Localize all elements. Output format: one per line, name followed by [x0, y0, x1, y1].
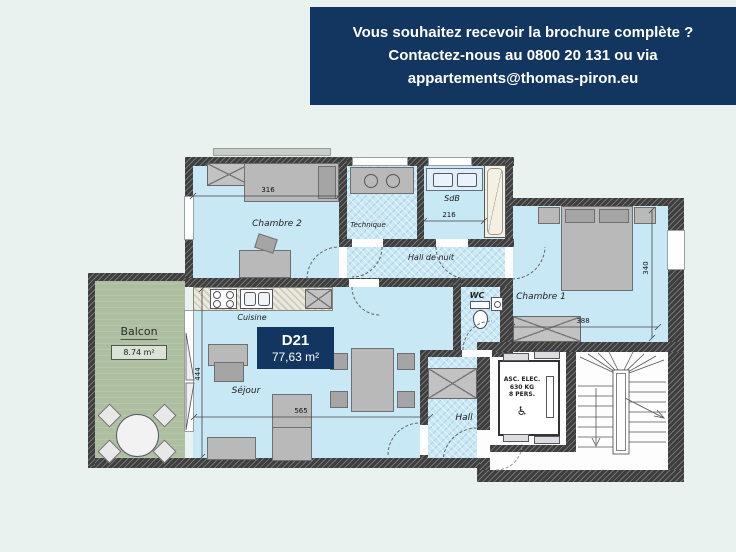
elevator-door-mechanism — [503, 353, 529, 361]
nightstand — [538, 207, 560, 224]
nightstand — [634, 207, 656, 224]
dimension-sejour-width: 565 — [294, 407, 307, 415]
room-label-cuisine: Cuisine — [237, 313, 266, 322]
elevator-label: ASC. ELEC. 630 KG 8 PERS. — [499, 376, 545, 399]
banner-line3: appartements@thomas-piron.eu — [408, 69, 639, 89]
elevator-rail — [546, 376, 554, 418]
burner — [226, 300, 234, 308]
dimension-chambre1-depth: 340 — [642, 261, 650, 274]
room-label-sdb: SdB — [444, 194, 460, 203]
burner — [213, 291, 221, 299]
elevator-label-line1: ASC. ELEC. — [499, 376, 545, 384]
contact-banner: Vous souhaitez recevoir la brochure comp… — [310, 7, 736, 105]
window — [667, 230, 685, 270]
elevator-label-line2: 630 KG — [499, 384, 545, 392]
banner-line1: Vous souhaitez recevoir la brochure comp… — [353, 23, 694, 43]
door-opening — [339, 247, 347, 278]
hand-basin — [491, 297, 503, 311]
dining-table — [351, 348, 394, 412]
unit-box: D21 77,63 m² — [257, 327, 334, 369]
door-opening — [349, 279, 379, 287]
dimension-sejour-depth: 444 — [194, 367, 202, 380]
room-label-hall: Hall — [455, 413, 472, 423]
door-opening — [436, 239, 468, 247]
elevator-label-line3: 8 PERS. — [499, 391, 545, 399]
sink-basin — [244, 292, 256, 306]
sofa-cushion-line — [273, 427, 311, 428]
wheelchair-icon: ♿ — [508, 404, 536, 418]
room-label-hall-de-nuit: Hall de nuit — [408, 253, 454, 262]
flyer-canvas: ASC. ELEC. 630 KG 8 PERS. ♿ Chambre 2 Te… — [0, 0, 736, 552]
wall — [566, 352, 576, 452]
sink-basin — [258, 292, 270, 306]
banner-line2: Contactez-nous au 0800 20 131 ou via — [388, 46, 657, 66]
room-label-balcon: Balcon — [120, 325, 157, 340]
room-label-chambre1: Chambre 1 — [516, 292, 566, 302]
washbasin — [433, 173, 453, 187]
wall — [477, 470, 684, 482]
desk — [239, 250, 291, 278]
elevator-door-mechanism — [534, 436, 560, 444]
door-opening — [477, 430, 490, 458]
double-washbasin — [426, 168, 483, 191]
toilet-tank — [470, 301, 490, 309]
pillow — [565, 209, 595, 223]
wall — [490, 445, 566, 452]
washer-drum — [386, 174, 400, 188]
door-opening — [420, 425, 428, 455]
room-label-technique: Technique — [350, 221, 386, 229]
shower — [484, 165, 506, 238]
door-opening — [505, 247, 513, 278]
window-ledge — [213, 148, 331, 156]
wall — [505, 198, 684, 206]
balcony-area-label: 8.74 m² — [111, 345, 167, 360]
pillow — [318, 166, 336, 199]
armchair-seat — [214, 362, 244, 382]
door-opening — [462, 350, 492, 357]
unit-area: 77,63 m² — [257, 350, 334, 364]
window — [352, 157, 408, 166]
room-label-chambre2: Chambre 2 — [252, 219, 302, 229]
room-label-wc: WC — [470, 291, 485, 300]
washer-drum — [364, 174, 378, 188]
dining-chair — [330, 391, 348, 408]
door-opening — [352, 239, 383, 247]
shower-tray — [487, 168, 503, 235]
dining-chair — [397, 353, 415, 370]
hall-de-nuit-floor — [347, 247, 505, 279]
hall-closet — [428, 368, 477, 399]
kitchen-sink — [240, 289, 273, 309]
stove-icon — [210, 289, 237, 309]
dimension-chambre1-width: 388 — [576, 317, 589, 325]
balcony-wall — [88, 273, 185, 281]
wardrobe — [513, 316, 581, 342]
dining-chair — [397, 391, 415, 408]
sliding-door-window — [184, 310, 194, 432]
wall — [339, 157, 347, 247]
balcony-wall — [88, 273, 95, 466]
dimension-sdb-width: 216 — [442, 211, 455, 219]
window — [184, 196, 194, 240]
kitchen-cabinet — [305, 289, 332, 309]
landing-floor — [490, 452, 668, 470]
stairwell-floor — [576, 352, 668, 452]
unit-code: D21 — [257, 332, 334, 349]
room-label-sejour: Séjour — [232, 386, 261, 396]
side-table — [207, 437, 256, 460]
burner — [226, 291, 234, 299]
elevator-door-mechanism — [534, 351, 560, 359]
dimension-chambre2-width: 316 — [261, 186, 274, 194]
wall — [453, 279, 461, 350]
basin-bowl — [494, 301, 501, 308]
washing-machine — [350, 167, 414, 194]
burner — [213, 300, 221, 308]
sofa — [272, 394, 312, 461]
washbasin — [457, 173, 477, 187]
pillow — [599, 209, 629, 223]
wall — [417, 157, 424, 247]
elevator-door-mechanism — [503, 434, 529, 442]
wall — [477, 342, 684, 352]
window — [428, 157, 472, 166]
